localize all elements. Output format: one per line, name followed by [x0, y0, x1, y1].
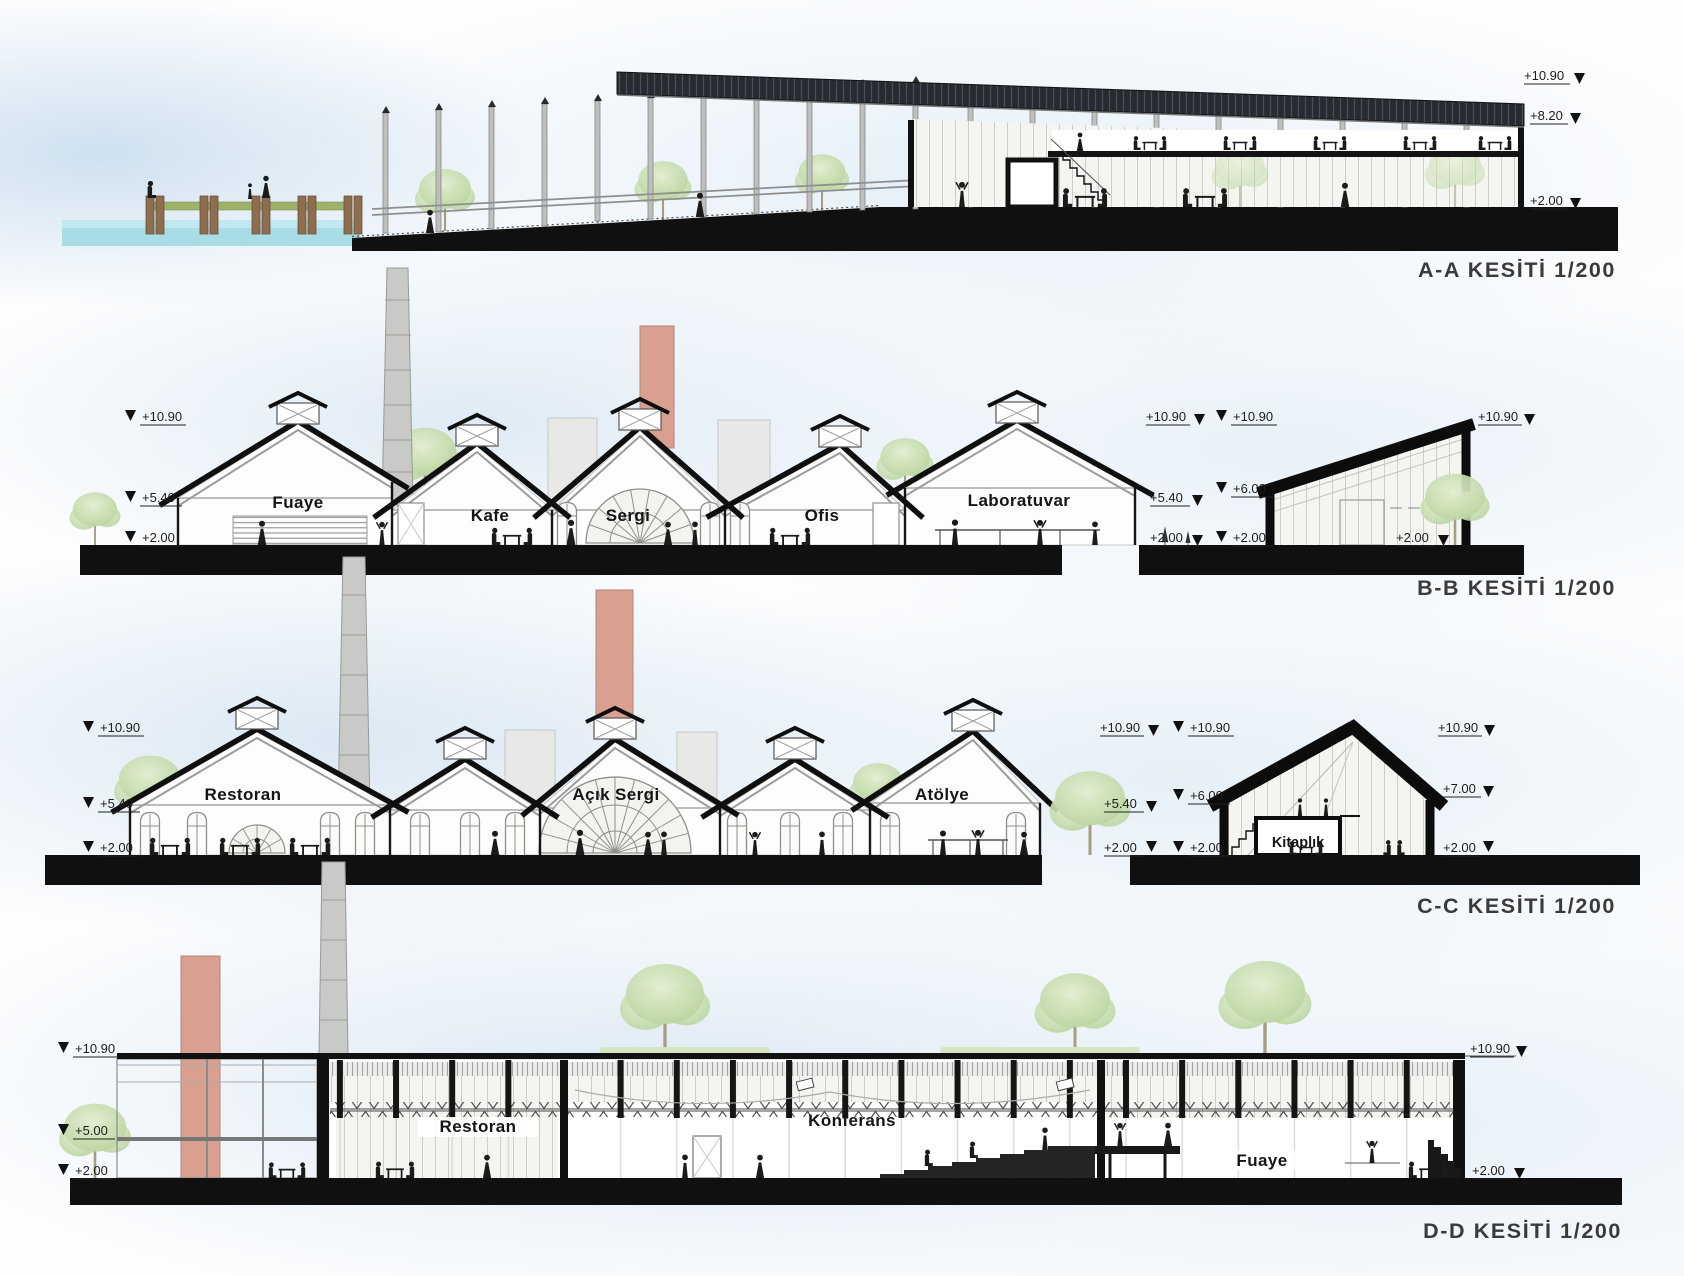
- level-arrow-icon: [1173, 841, 1184, 852]
- svg-text:+5.40: +5.40: [1150, 490, 1183, 505]
- svg-text:+2.00: +2.00: [142, 530, 175, 545]
- level-arrow-icon: [1194, 414, 1205, 425]
- svg-text:+5.40: +5.40: [1104, 796, 1137, 811]
- elevation-text: +10.90: [1524, 68, 1564, 83]
- level-arrow-icon: [1514, 1168, 1525, 1179]
- gray-chimney: [382, 268, 413, 505]
- door: [873, 503, 899, 545]
- cc-library-building: Kitaplık: [1210, 727, 1444, 855]
- svg-text:+10.90: +10.90: [1190, 720, 1230, 735]
- room-label: Kitaplık: [1272, 835, 1325, 851]
- level-arrow-icon: [58, 1042, 69, 1053]
- svg-text:+2.00: +2.00: [75, 1163, 108, 1178]
- svg-text:+2.00: +2.00: [1104, 840, 1137, 855]
- level-arrow-icon: [125, 531, 136, 542]
- svg-text:+10.90: +10.90: [1470, 1041, 1510, 1056]
- svg-text:+10.90: +10.90: [100, 720, 140, 735]
- level-arrow-icon: [1192, 495, 1203, 506]
- level-arrow-icon: [1148, 725, 1159, 736]
- elevation-marker: +8.20: [1530, 108, 1581, 124]
- section-title: C-C KESİTİ 1/200: [1417, 894, 1616, 918]
- architectural-sections-sheet: +10.90 +8.20 +2.00 A-A KESİTİ 1/200: [0, 0, 1684, 1276]
- svg-text:+8.20: +8.20: [1530, 108, 1563, 123]
- svg-text:+2.00: +2.00: [1396, 530, 1429, 545]
- elevation-marker: +10.90: [1524, 68, 1585, 84]
- room-label: Laboratuvar: [968, 491, 1071, 510]
- bb-buildings: Fuaye Kafe Sergi Ofis Laboratuvar: [162, 392, 1151, 545]
- svg-text:+10.90: +10.90: [1478, 409, 1518, 424]
- garage-door: [233, 516, 367, 545]
- ground: [45, 855, 1042, 885]
- svg-text:+6.00: +6.00: [1190, 788, 1223, 803]
- core-box: [1008, 160, 1056, 207]
- structure-columns: [330, 1060, 1453, 1118]
- svg-text:+2.00: +2.00: [1150, 530, 1183, 545]
- section-bb: Fuaye Kafe Sergi Ofis Laboratuvar +10.90…: [70, 268, 1617, 600]
- room-label: Konferans: [808, 1111, 896, 1130]
- level-arrow-icon: [1146, 841, 1157, 852]
- room-label: Sergi: [606, 506, 651, 525]
- elevation-marker: +2.00: [1530, 193, 1581, 209]
- elevation-markers-aa: +10.90 +8.20 +2.00: [1524, 68, 1585, 209]
- cc-buildings: Restoran Açık Sergi Atölye: [114, 698, 1056, 855]
- roof-greenery: [600, 1047, 770, 1054]
- ground: [70, 1178, 1622, 1205]
- level-arrow-icon: [1192, 535, 1203, 546]
- level-arrow-icon: [1173, 721, 1184, 732]
- building-laboratuvar: [905, 423, 1135, 545]
- level-arrow-icon: [125, 491, 136, 502]
- level-arrow-icon: [1173, 789, 1184, 800]
- level-arrow-icon: [1516, 1046, 1527, 1057]
- sloping-roof: [617, 72, 1524, 126]
- level-arrow-icon: [1484, 725, 1495, 736]
- svg-text:+2.00: +2.00: [100, 840, 133, 855]
- dd-building: Restoran Konferans Fuaye: [117, 1053, 1465, 1178]
- svg-text:+10.90: +10.90: [1233, 409, 1273, 424]
- svg-text:+10.90: +10.90: [1146, 409, 1186, 424]
- room-label: Açık Sergi: [572, 785, 659, 804]
- section-title: D-D KESİTİ 1/200: [1423, 1219, 1622, 1243]
- level-arrow-icon: [1216, 531, 1227, 542]
- svg-text:+5.40: +5.40: [100, 796, 133, 811]
- roof-slab: [117, 1053, 1465, 1059]
- level-arrow-icon: [58, 1164, 69, 1175]
- sections-drawing: +10.90 +8.20 +2.00 A-A KESİTİ 1/200: [0, 0, 1684, 1276]
- level-arrow-icon: [83, 841, 94, 852]
- level-arrow-icon: [1574, 73, 1585, 84]
- brick-chimney: [181, 956, 220, 1178]
- svg-text:+2.00: +2.00: [1443, 840, 1476, 855]
- svg-text:+6.00: +6.00: [1233, 481, 1266, 496]
- room-label: Ofis: [805, 506, 840, 525]
- svg-text:+2.00: +2.00: [1472, 1163, 1505, 1178]
- level-arrow-icon: [83, 721, 94, 732]
- room-label: Restoran: [205, 785, 282, 804]
- svg-text:+5.40: +5.40: [142, 490, 175, 505]
- svg-text:+2.00: +2.00: [1233, 530, 1266, 545]
- room-label: Restoran: [440, 1117, 517, 1136]
- section-dd: Restoran Konferans Fuaye +10.90 +5.00 +2…: [58, 862, 1622, 1243]
- svg-text:+2.00: +2.00: [1190, 840, 1223, 855]
- section-aa: +10.90 +8.20 +2.00 A-A KESİTİ 1/200: [62, 68, 1618, 282]
- level-arrow-icon: [125, 410, 136, 421]
- level-arrow-icon: [1483, 841, 1494, 852]
- svg-text:+7.00: +7.00: [1443, 781, 1476, 796]
- level-arrow-icon: [1570, 113, 1581, 124]
- svg-text:+10.90: +10.90: [142, 409, 182, 424]
- section-title: A-A KESİTİ 1/200: [1418, 258, 1616, 282]
- svg-text:+5.00: +5.00: [75, 1123, 108, 1138]
- svg-text:+10.90: +10.90: [75, 1041, 115, 1056]
- level-arrow-icon: [1216, 482, 1227, 493]
- level-arrow-icon: [83, 797, 94, 808]
- svg-text:+10.90: +10.90: [1100, 720, 1140, 735]
- svg-text:+10.90: +10.90: [1438, 720, 1478, 735]
- level-arrow-icon: [1216, 410, 1227, 421]
- room-label: Fuaye: [1236, 1151, 1287, 1170]
- section-title: B-B KESİTİ 1/200: [1417, 576, 1616, 600]
- svg-text:+2.00: +2.00: [1530, 193, 1563, 208]
- level-arrow-icon: [1146, 801, 1157, 812]
- ground: [80, 545, 1062, 575]
- room-label: Fuaye: [272, 493, 323, 512]
- dock-people: [148, 176, 270, 199]
- gray-chimney: [319, 862, 348, 1055]
- room-label: Kafe: [471, 506, 509, 525]
- level-arrow-icon: [1524, 414, 1535, 425]
- level-arrow-icon: [1483, 786, 1494, 797]
- upper-floor-slab: [1048, 151, 1524, 157]
- room-label: Atölye: [915, 785, 969, 804]
- section-cc: Restoran Açık Sergi Atölye Kitaplık +10.…: [45, 557, 1640, 918]
